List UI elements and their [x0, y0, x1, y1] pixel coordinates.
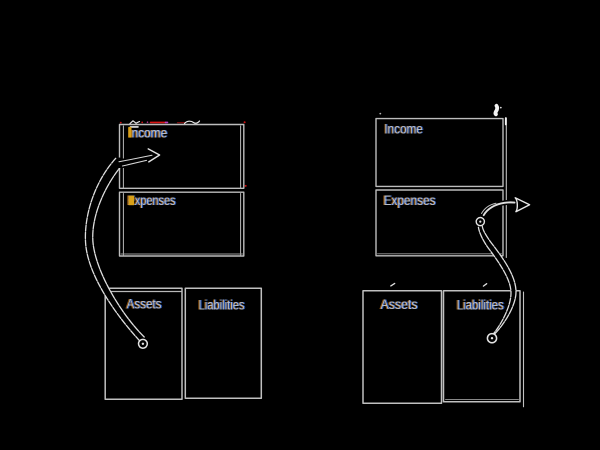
svg-text:Expenses: Expenses: [384, 192, 436, 208]
svg-text:Income: Income: [128, 125, 167, 141]
svg-text:Liabilities: Liabilities: [457, 297, 504, 312]
svg-text:Assets: Assets: [381, 297, 418, 312]
svg-text:Assets: Assets: [127, 297, 162, 312]
svg-text:Liabilities: Liabilities: [199, 297, 245, 312]
svg-text:Income: Income: [384, 120, 423, 136]
svg-text:Expenses: Expenses: [128, 192, 176, 208]
